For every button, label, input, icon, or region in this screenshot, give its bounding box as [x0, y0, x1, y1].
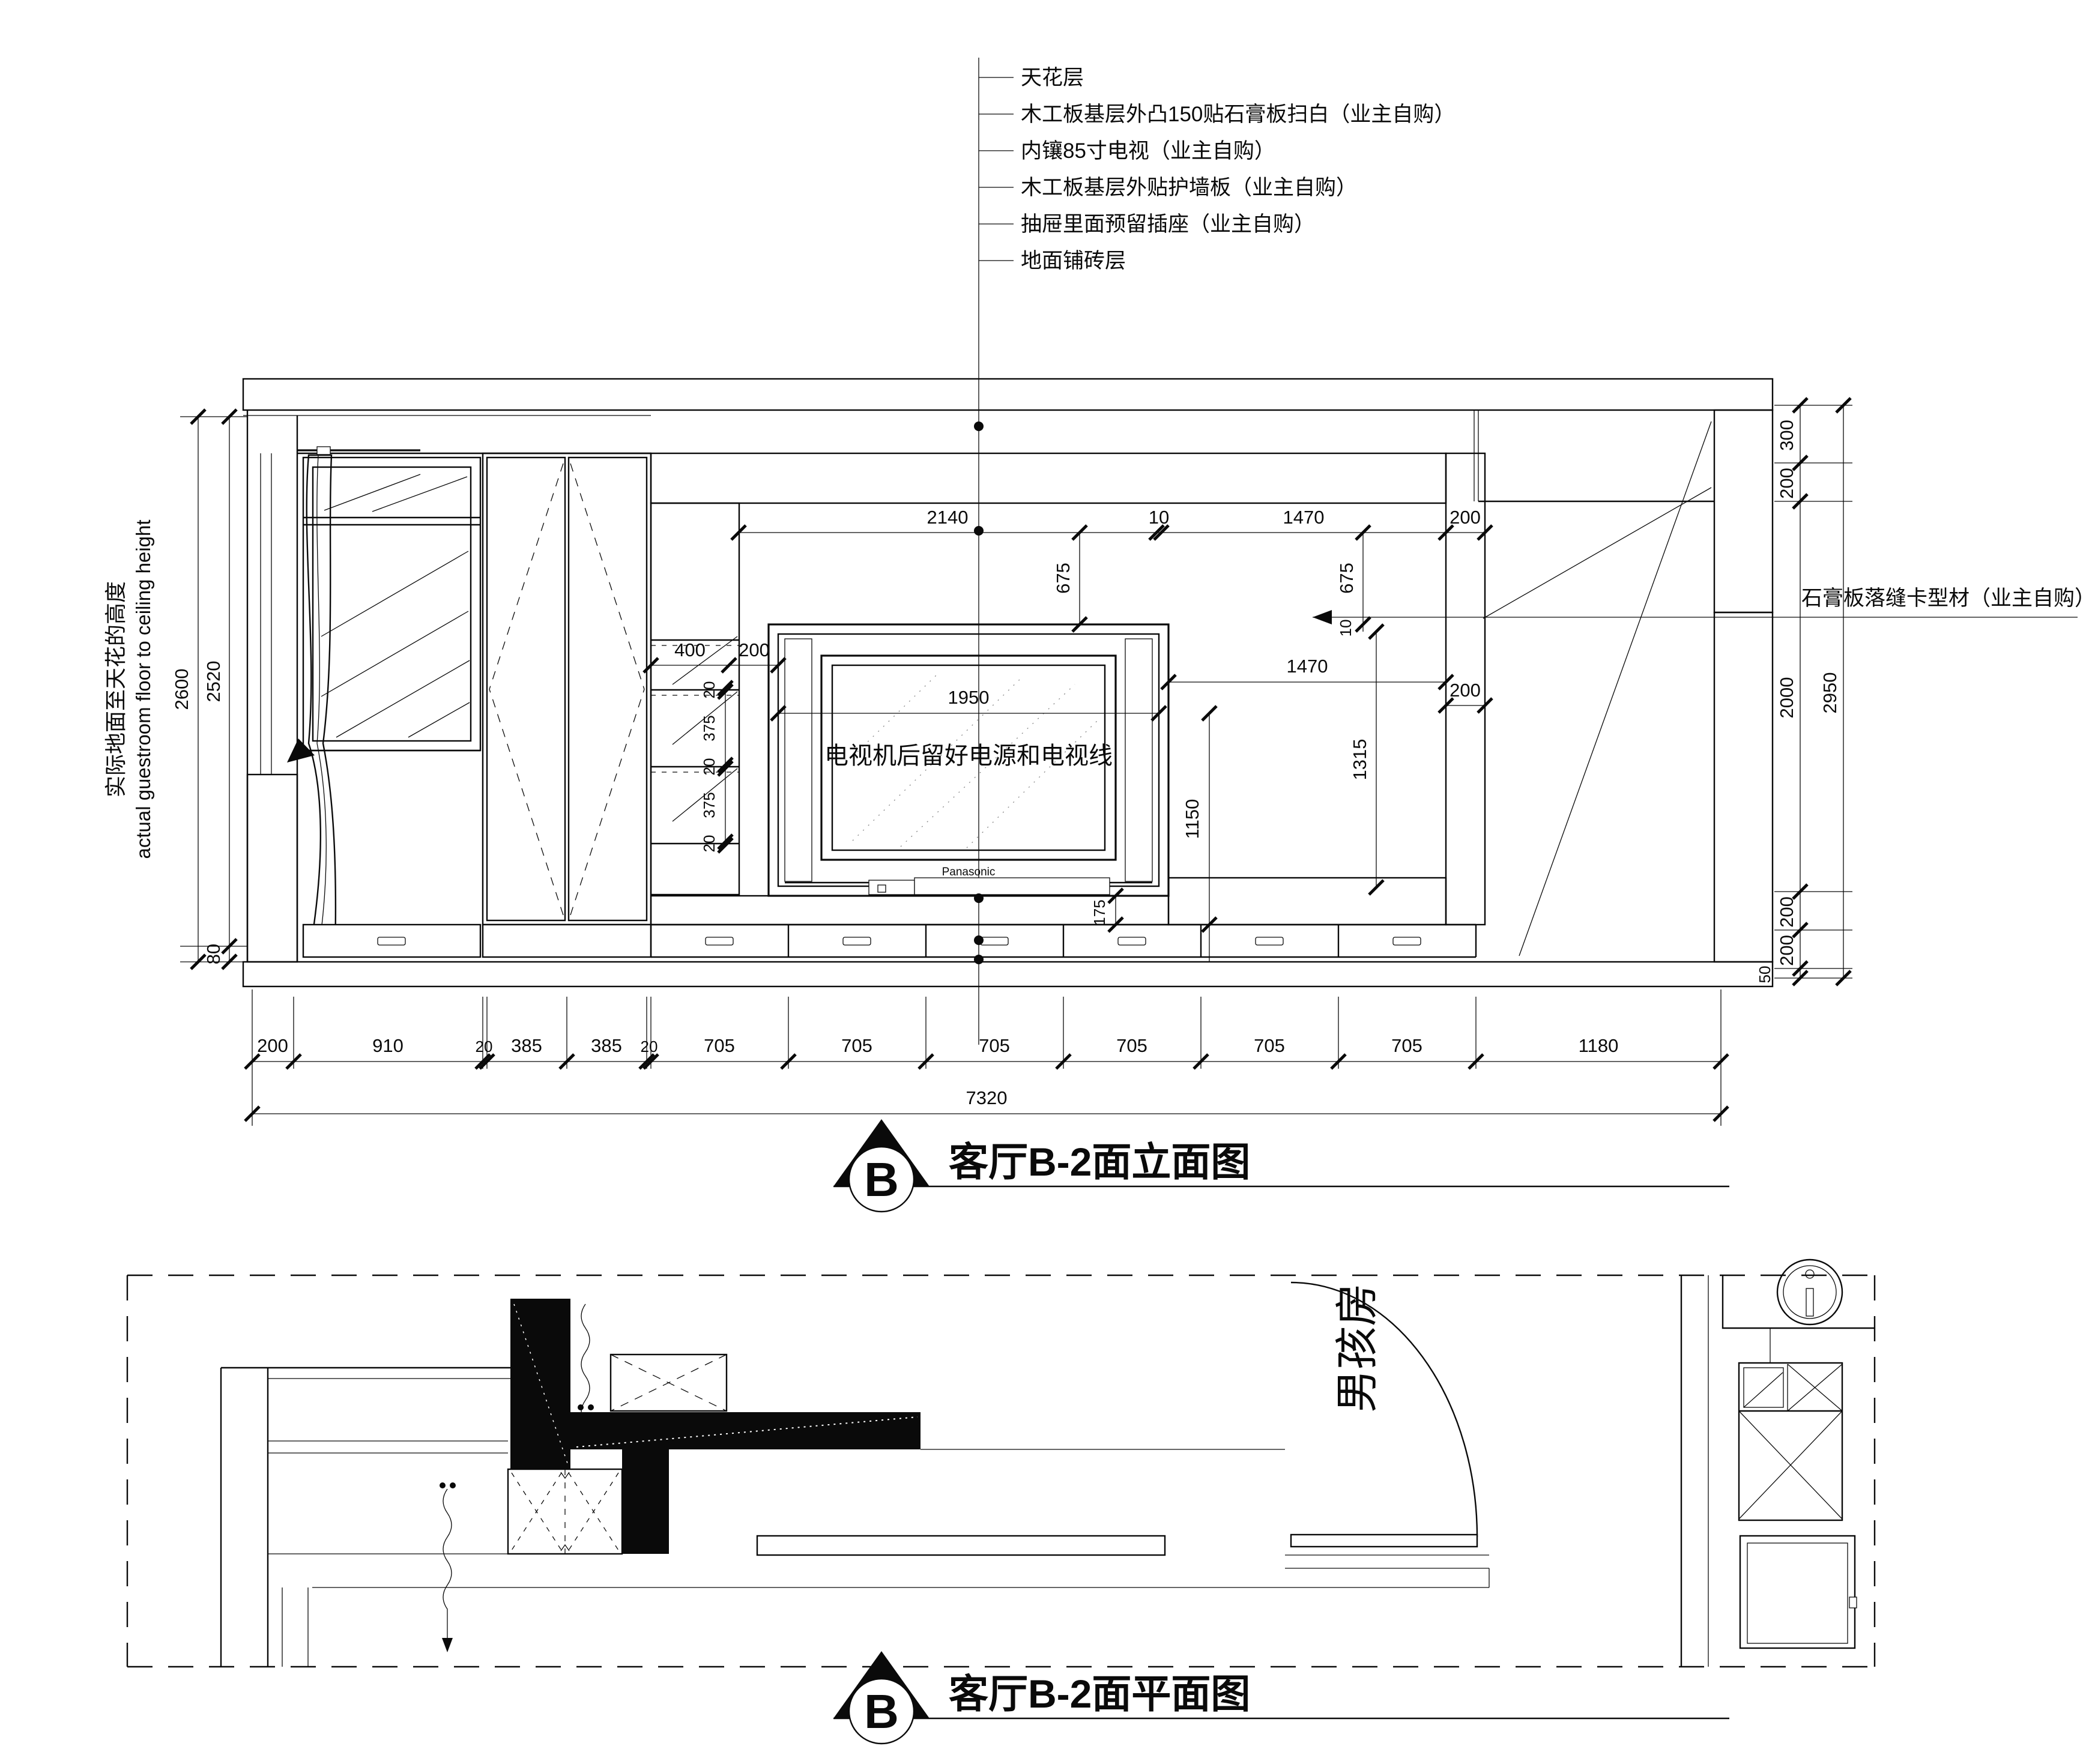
right-callout: 石膏板落缝卡型材（业主自购） — [1801, 587, 2096, 610]
svg-text:200: 200 — [257, 1035, 288, 1056]
svg-text:910: 910 — [372, 1035, 404, 1056]
svg-text:1950: 1950 — [948, 687, 990, 708]
side-note-cn: 实际地面至天花的高度 — [103, 581, 128, 797]
svg-text:675: 675 — [1336, 563, 1357, 594]
svg-text:20: 20 — [700, 681, 718, 699]
svg-text:385: 385 — [591, 1035, 622, 1056]
svg-text:675: 675 — [1053, 563, 1074, 594]
right-wall-lower — [1714, 612, 1773, 962]
wood-band-top — [651, 453, 1446, 503]
title-marker-letter: B — [864, 1153, 899, 1206]
svg-text:385: 385 — [511, 1035, 542, 1056]
svg-text:20: 20 — [476, 1038, 493, 1056]
plan-wall-black-stub — [622, 1449, 669, 1554]
svg-text:1180: 1180 — [1579, 1035, 1619, 1056]
dim-left-total: 2600 — [171, 669, 192, 710]
niche-column-left — [785, 639, 812, 881]
svg-text:20: 20 — [641, 1038, 658, 1056]
bottom-dimension-chain: 200 910 20 385 385 20 705 705 705 705 70… — [245, 989, 1728, 1126]
svg-text:200: 200 — [1450, 507, 1481, 528]
plan-column-box — [611, 1355, 727, 1411]
elevation-title: B 客厅B-2面立面图 — [833, 1119, 1729, 1212]
svg-text:2140: 2140 — [927, 507, 969, 528]
svg-text:10: 10 — [1337, 620, 1355, 637]
plan-marker-letter: B — [864, 1685, 899, 1738]
shelf-unit — [651, 503, 739, 895]
svg-text:20: 20 — [700, 835, 718, 853]
right-wall-upper — [1714, 410, 1773, 612]
tv-note: 电视机后留好电源和电视线 — [824, 743, 1113, 769]
elevation-title-text: 客厅B-2面立面图 — [949, 1140, 1250, 1184]
tv-soundbar — [914, 878, 1110, 895]
cad-drawing-sheet: 天花层 木工板基层外凸150贴石膏板扫白（业主自购） 内镶85寸电视（业主自购）… — [0, 0, 2098, 1764]
glass-line — [324, 474, 420, 510]
callout-gypsum: 木工板基层外凸150贴石膏板扫白（业主自购） — [1021, 103, 1455, 126]
plan-tv-console — [757, 1536, 1165, 1555]
drawer-row — [303, 925, 1476, 957]
niche-column-right — [1125, 639, 1152, 881]
curtain — [287, 447, 420, 952]
svg-text:1315: 1315 — [1349, 739, 1370, 781]
plan-insulation-squiggle-right — [578, 1304, 594, 1424]
groove-arrow — [1313, 610, 1332, 624]
svg-text:200: 200 — [1450, 680, 1481, 701]
plan-cabinet-x — [508, 1469, 622, 1554]
svg-text:705: 705 — [841, 1035, 872, 1056]
plan-title: B 客厅B-2面平面图 — [833, 1651, 1729, 1744]
svg-text:705: 705 — [704, 1035, 735, 1056]
tv-niche: Panasonic 电视机后留好电源和电视线 — [769, 624, 1168, 896]
svg-text:375: 375 — [700, 792, 718, 818]
svg-text:175: 175 — [1090, 899, 1108, 925]
plan-left-wall — [221, 1368, 510, 1667]
room-label: 男孩房 — [1334, 1283, 1382, 1413]
svg-text:400: 400 — [674, 639, 706, 660]
ceiling-slab — [243, 379, 1773, 410]
svg-text:1470: 1470 — [1283, 507, 1325, 528]
plan-bathroom — [1723, 1260, 1875, 1648]
svg-text:705: 705 — [1254, 1035, 1285, 1056]
svg-text:200: 200 — [739, 639, 770, 660]
dim-left-inner: 2520 — [203, 661, 224, 702]
svg-text:200: 200 — [1776, 468, 1797, 499]
floor-slab — [243, 962, 1773, 986]
svg-text:200: 200 — [1776, 935, 1797, 966]
svg-text:300: 300 — [1776, 420, 1797, 451]
callout-floortile: 地面铺砖层 — [1021, 249, 1126, 273]
plan-insulation-squiggle-left — [440, 1482, 456, 1652]
dim-total-width: 7320 — [966, 1087, 1008, 1108]
svg-text:705: 705 — [979, 1035, 1010, 1056]
callout-wallpanel: 木工板基层外贴护墙板（业主自购） — [1021, 176, 1357, 199]
side-note-en: actual guestroom floor to ceiling height — [132, 520, 154, 859]
door-leaf — [1291, 1535, 1477, 1547]
washer — [1740, 1536, 1855, 1648]
tv-brand: Panasonic — [942, 866, 996, 878]
left-wall-hatch — [247, 775, 297, 962]
wardrobe-base — [483, 925, 651, 957]
drawing-svg: 天花层 木工板基层外凸150贴石膏板扫白（业主自购） 内镶85寸电视（业主自购）… — [0, 0, 2098, 1764]
svg-text:705: 705 — [1391, 1035, 1422, 1056]
dim-left-base: 80 — [203, 944, 224, 964]
svg-text:200: 200 — [1776, 896, 1797, 928]
plan-title-text: 客厅B-2面平面图 — [949, 1672, 1250, 1716]
plan-wall-black-horizontal — [570, 1412, 921, 1449]
callout-tv85: 内镶85寸电视（业主自购） — [1021, 139, 1275, 163]
leader-diagonal-2 — [1483, 488, 1711, 618]
wardrobe — [483, 453, 651, 957]
plan-wall-black-vertical — [510, 1299, 570, 1469]
wood-band-bottom-right — [1168, 878, 1446, 925]
plan-view: 男孩房 — [127, 1260, 1875, 1667]
svg-text:10: 10 — [1149, 507, 1169, 528]
svg-text:20: 20 — [700, 758, 718, 776]
svg-text:50: 50 — [1756, 966, 1774, 983]
svg-text:2000: 2000 — [1776, 677, 1797, 719]
tv-device-box — [869, 880, 914, 895]
plan-door: 男孩房 — [1285, 1282, 1489, 1587]
svg-text:1150: 1150 — [1182, 799, 1203, 839]
svg-text:1470: 1470 — [1287, 656, 1328, 677]
svg-text:375: 375 — [700, 715, 718, 741]
callout-ceiling: 天花层 — [1021, 66, 1084, 89]
callout-socket: 抽屉里面预留插座（业主自购） — [1021, 213, 1315, 236]
dim-right-total: 2950 — [1819, 672, 1840, 714]
svg-text:705: 705 — [1116, 1035, 1147, 1056]
